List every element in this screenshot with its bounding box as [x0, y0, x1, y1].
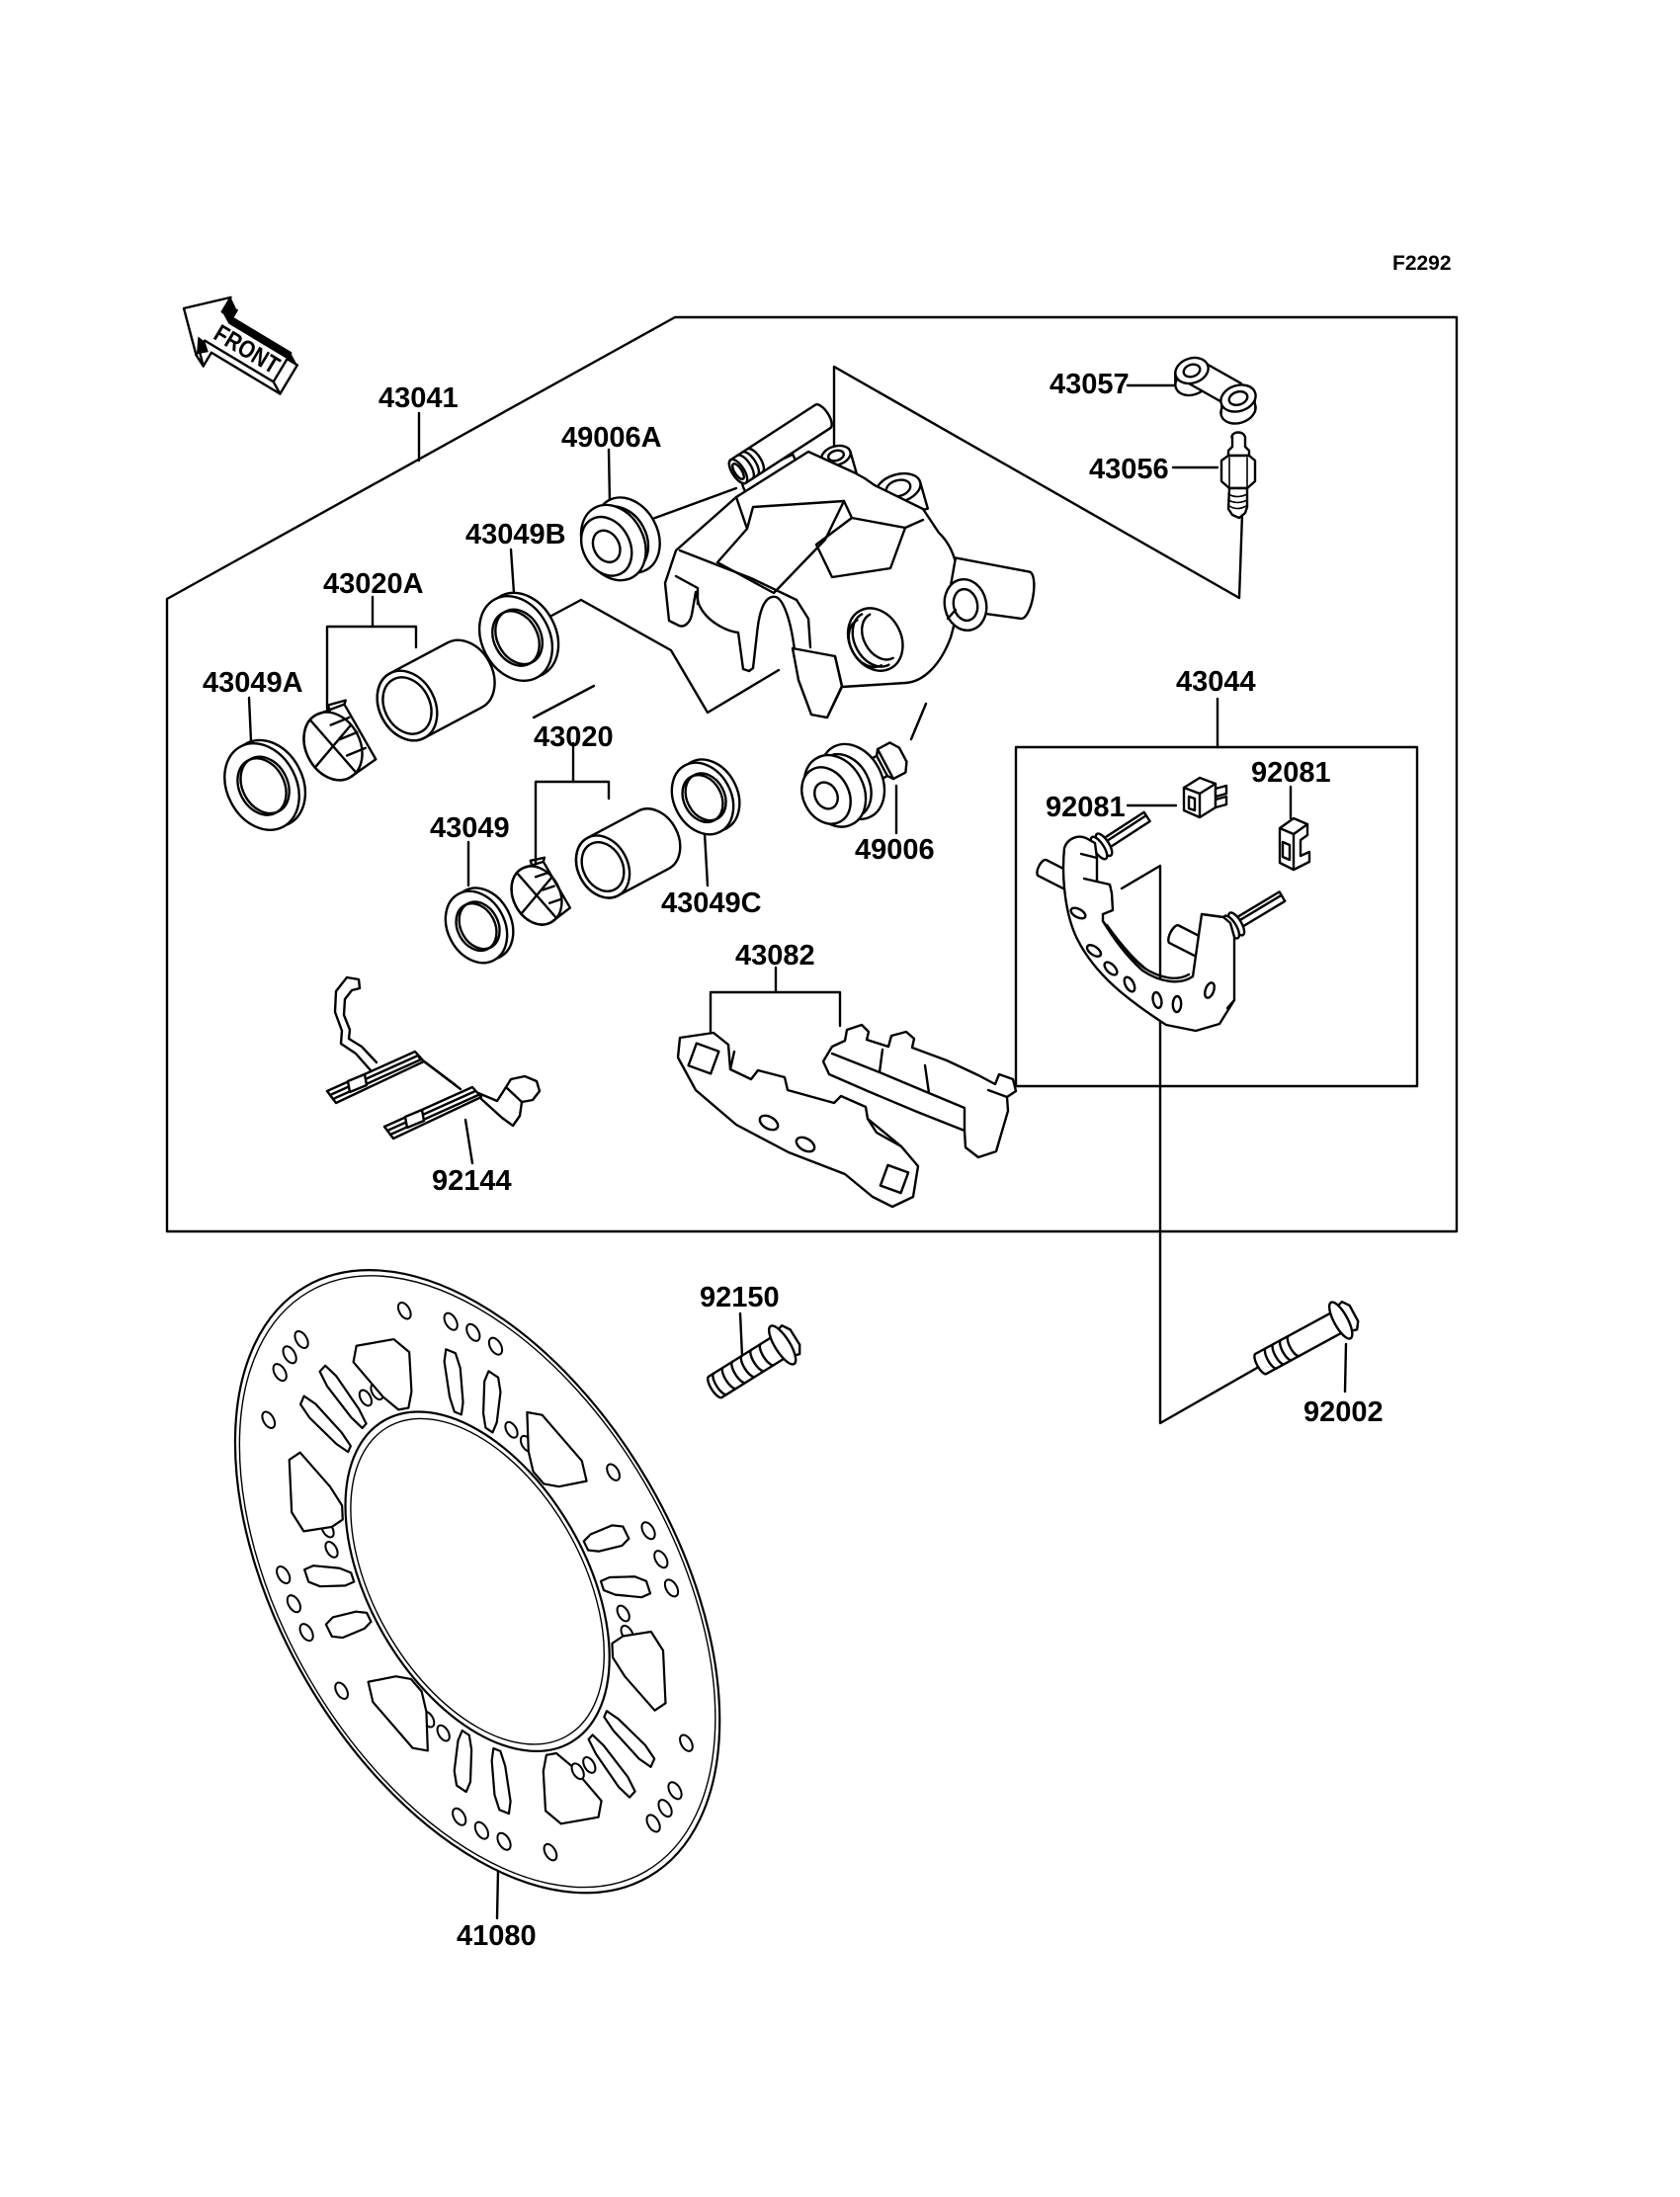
svg-text:43044: 43044 — [1176, 666, 1256, 698]
svg-text:43049A: 43049A — [203, 667, 303, 699]
svg-text:41080: 41080 — [457, 1920, 537, 1952]
svg-text:43082: 43082 — [735, 940, 815, 972]
svg-text:49006A: 49006A — [561, 422, 662, 454]
svg-text:43020: 43020 — [534, 721, 614, 753]
svg-text:43049B: 43049B — [465, 519, 566, 550]
svg-text:43020A: 43020A — [323, 568, 424, 600]
svg-text:43057: 43057 — [1050, 369, 1130, 400]
svg-text:92144: 92144 — [432, 1165, 512, 1197]
svg-text:43041: 43041 — [378, 382, 459, 414]
svg-text:92002: 92002 — [1303, 1396, 1384, 1428]
svg-text:92081: 92081 — [1046, 792, 1126, 823]
svg-text:49006: 49006 — [855, 834, 935, 866]
svg-text:92081: 92081 — [1251, 757, 1331, 789]
svg-text:43049C: 43049C — [661, 887, 762, 919]
svg-text:F2292: F2292 — [1392, 252, 1452, 275]
svg-text:43056: 43056 — [1089, 454, 1169, 485]
svg-text:92150: 92150 — [700, 1282, 780, 1313]
svg-text:43049: 43049 — [430, 812, 510, 844]
